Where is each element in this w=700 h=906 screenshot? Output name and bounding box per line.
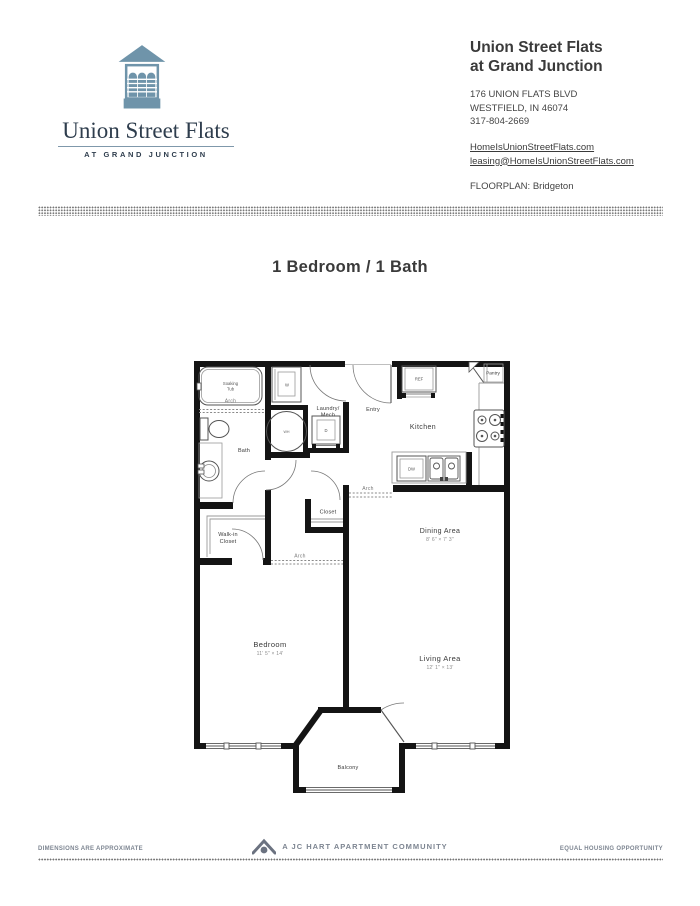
logo-wordmark: Union Street Flats AT GRAND JUNCTION <box>58 118 234 159</box>
laundry-label-1: Laundry/ <box>316 406 339 412</box>
balcony-chamfer-wall <box>295 710 321 746</box>
property-info: Union Street Flats at Grand Junction 176… <box>470 38 680 192</box>
soaking-tub-label-1: Soaking <box>223 381 239 386</box>
laundry-label-2: Mech <box>321 413 335 419</box>
water-heater-label: WH <box>284 430 290 434</box>
dining-area-label: Dining Area <box>420 528 461 535</box>
email-link[interactable]: leasing@HomeIsUnionStreetFlats.com <box>470 155 680 169</box>
fridge-label: REF <box>415 377 424 382</box>
bedroom-label: Bedroom <box>253 640 286 649</box>
walls <box>194 361 510 793</box>
jc-hart-text: A JC HART APARTMENT COMMUNITY <box>282 842 447 851</box>
kitchen-sink <box>428 456 460 481</box>
washer-label: W <box>285 383 289 388</box>
union-street-flats-logo-icon <box>117 44 167 118</box>
toilet <box>200 418 229 440</box>
walkin-label-1: Walk-in <box>218 532 238 538</box>
bath-sink <box>198 443 222 498</box>
stove-knobs <box>501 414 504 442</box>
soaking-tub-label-2: Tub <box>227 387 235 392</box>
walkin-label-2: Closet <box>220 539 237 545</box>
jc-hart-roof-icon <box>252 838 276 855</box>
bath-label: Bath <box>238 448 250 454</box>
pantry-label: Pantry <box>486 371 500 377</box>
bedroom-dims: 11' 5" × 14' <box>257 651 284 657</box>
tub-faucet <box>197 383 201 390</box>
hall-closet-shelf <box>311 519 343 522</box>
living-area-label: Living Area <box>419 654 461 663</box>
footer-dotted-line <box>38 858 663 861</box>
entry-label: Entry <box>366 407 380 413</box>
dotted-divider <box>38 206 663 216</box>
cupola-base <box>124 99 161 109</box>
cupola-icon <box>117 44 167 118</box>
page-title: 1 Bedroom / 1 Bath <box>0 258 700 277</box>
address-line1: 176 UNION FLATS BLVD <box>470 88 680 102</box>
kitchen-label: Kitchen <box>410 424 436 431</box>
hall-closet-label: Closet <box>320 510 337 516</box>
website-link[interactable]: HomeIsUnionStreetFlats.com <box>470 141 680 155</box>
logo-name: Union Street Flats <box>58 118 234 147</box>
kitchen-arch-label: Arch <box>362 486 373 492</box>
jc-hart-brand: A JC HART APARTMENT COMMUNITY <box>250 838 450 855</box>
floorplan-name: FLOORPLAN: Bridgeton <box>470 181 680 192</box>
equal-housing-text: EQUAL HOUSING OPPORTUNITY <box>453 846 663 852</box>
property-links: HomeIsUnionStreetFlats.com leasing@HomeI… <box>470 141 680 169</box>
tub-arch-label: Arch <box>225 399 236 405</box>
dryer-label: D <box>324 428 327 433</box>
phone-number: 317-804-2669 <box>470 115 680 129</box>
living-area-dims: 12' 1" × 13' <box>426 665 453 671</box>
dining-area-dims: 8' 6" × 7' 3" <box>426 537 454 543</box>
address-line2: WESTFIELD, IN 46074 <box>470 102 680 116</box>
floorplan-drawing: Soaking Tub Arch Bath W D WH Laundry/ Me… <box>182 352 522 802</box>
property-address: 176 UNION FLATS BLVD WESTFIELD, IN 46074… <box>470 88 680 129</box>
refrigerator <box>402 366 436 398</box>
dimensions-disclaimer: DIMENSIONS ARE APPROXIMATE <box>38 846 143 852</box>
property-title: Union Street Flats at Grand Junction <box>470 38 680 76</box>
cupola-roof <box>119 45 166 62</box>
hall-arch-label: Arch <box>294 554 305 560</box>
balcony-label: Balcony <box>338 765 359 771</box>
dishwasher-label: DW <box>408 467 415 472</box>
logo-tagline: AT GRAND JUNCTION <box>58 150 234 159</box>
stove <box>474 410 504 447</box>
